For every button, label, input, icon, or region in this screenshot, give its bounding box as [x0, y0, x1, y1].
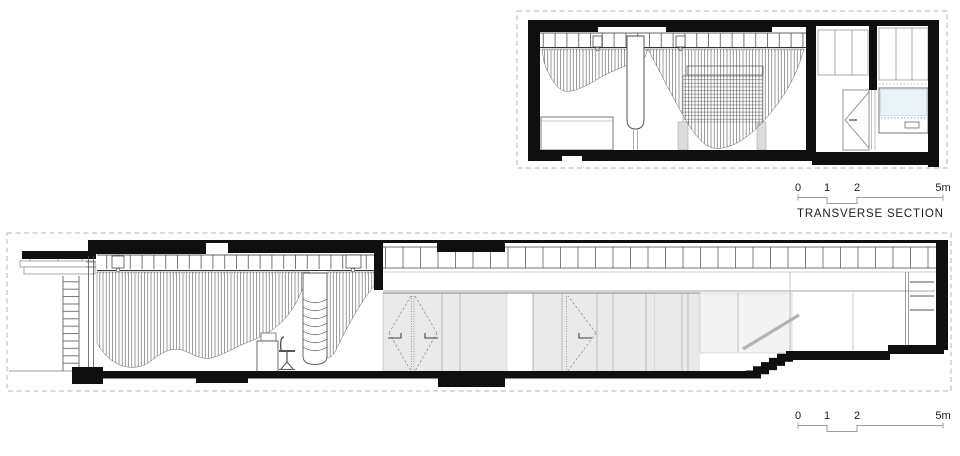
entrance-canopy: [20, 251, 96, 274]
scale-label-0: 0: [795, 182, 801, 194]
footing: [72, 367, 103, 384]
longitudinal-section-drawing: 0 1 2 5m: [7, 233, 951, 432]
coil-column: [303, 273, 327, 365]
scale-label-1: 1: [824, 182, 830, 194]
table-leg: [678, 122, 688, 150]
transverse-scale-bar: 0 1 2 5m: [795, 182, 951, 204]
main-room-ceiling: [97, 255, 374, 273]
wardrobe-elevation: [818, 30, 868, 75]
curtain-hatch-right: [648, 49, 804, 149]
right-wall: [928, 20, 939, 167]
ceiling-fixture: [676, 36, 685, 51]
curtain-hatch-by-column: [327, 272, 374, 358]
roof-slab: [528, 20, 812, 27]
longitudinal-scale-bar: 0 1 2 5m: [795, 410, 951, 432]
rear-ceiling-grid: [383, 247, 944, 291]
left-wall: [528, 20, 540, 152]
panel-opening: [507, 293, 533, 372]
shelves: [910, 282, 934, 310]
scale-label-2: 2: [854, 182, 860, 194]
bulkhead-wall: [374, 240, 383, 290]
scale-label-1: 1: [824, 410, 830, 422]
door-elevation: [843, 90, 875, 150]
rear-wall: [936, 240, 948, 350]
office-chair: [279, 337, 295, 370]
ceiling-fixture: [346, 255, 361, 272]
transverse-ceiling-joists: [540, 33, 806, 51]
stair-steps: [746, 355, 789, 375]
low-cabinet: [541, 117, 613, 150]
scale-label-5m: 5m: [935, 182, 950, 194]
desk-monitor: [261, 333, 276, 341]
footing: [438, 376, 505, 387]
scale-label-2: 2: [854, 410, 860, 422]
scale-label-0: 0: [795, 410, 801, 422]
footing: [196, 375, 248, 383]
partition-wall: [869, 23, 877, 90]
floor-slab: [85, 371, 746, 379]
party-wall: [806, 23, 816, 152]
scale-label-5m: 5m: [935, 410, 950, 422]
vanity-counter: [879, 88, 928, 133]
drawer-handle: [905, 122, 919, 128]
transverse-section-label: TRANSVERSE SECTION: [797, 208, 944, 220]
architectural-sections-canvas: 0 1 2 5m TRANSVERSE SECTION: [0, 0, 960, 456]
ceiling-fixture: [593, 36, 602, 51]
ceiling-fixture: [112, 256, 124, 272]
wardrobe-elevation: [879, 28, 928, 84]
upper-floor-slab: [786, 351, 890, 360]
transverse-section-drawing: 0 1 2 5m TRANSVERSE SECTION: [517, 11, 951, 220]
counter-top-tint: [881, 90, 927, 116]
drawing-sheet: 0 1 2 5m TRANSVERSE SECTION: [0, 0, 960, 456]
facade-ladder: [63, 276, 79, 371]
desk: [257, 333, 278, 372]
storage-partition: [906, 272, 909, 350]
floor-slab: [812, 152, 936, 165]
round-column: [627, 36, 644, 150]
